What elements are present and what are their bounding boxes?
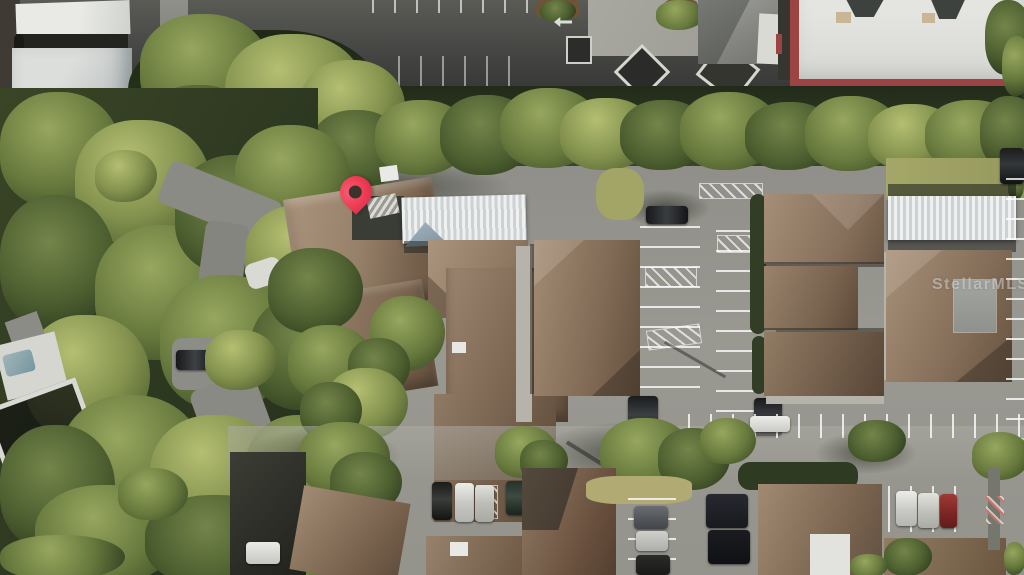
tree xyxy=(1004,542,1024,575)
car xyxy=(636,531,668,551)
car xyxy=(750,416,790,432)
fence-post xyxy=(486,56,488,88)
dumpster-enclosure xyxy=(566,36,592,64)
hvac-unit xyxy=(836,12,851,23)
parking-stripes xyxy=(1006,178,1024,440)
car xyxy=(634,506,668,529)
car xyxy=(646,206,688,224)
car xyxy=(706,494,748,528)
car xyxy=(455,483,474,522)
parking-stripes xyxy=(640,226,700,394)
fence-post xyxy=(508,56,510,88)
fence-post xyxy=(442,56,444,88)
tree xyxy=(1002,36,1024,96)
fence-post xyxy=(420,56,422,88)
hatch-marking xyxy=(718,236,754,252)
tree xyxy=(0,535,125,575)
fence-post xyxy=(464,56,466,88)
hvac-unit xyxy=(922,13,935,23)
aerial-photo: StellarMLS xyxy=(0,0,1024,575)
grass-patch xyxy=(596,168,644,220)
red-trim-left xyxy=(790,0,799,88)
seam xyxy=(530,244,534,394)
walkway xyxy=(766,396,884,404)
car xyxy=(475,485,494,522)
building-roof xyxy=(426,536,524,575)
rooftop-unit xyxy=(452,342,466,353)
hatch-marking xyxy=(646,268,696,286)
tree xyxy=(850,554,888,575)
rooftop-unit xyxy=(450,542,468,556)
hatch-marking xyxy=(986,496,1004,524)
building-roof xyxy=(764,332,884,396)
car xyxy=(940,494,957,528)
watermark: StellarMLS xyxy=(932,276,1024,294)
car xyxy=(636,555,670,575)
carport-canopy xyxy=(888,196,1016,240)
map-pin-hole xyxy=(346,183,364,201)
building-top-left-roof xyxy=(15,0,130,38)
car xyxy=(246,542,280,564)
car xyxy=(918,493,939,528)
rooftop-unit xyxy=(379,165,399,182)
car xyxy=(708,530,750,564)
car xyxy=(432,482,452,520)
building-roof xyxy=(764,266,858,330)
red-trim-sliver xyxy=(776,34,782,54)
tree xyxy=(884,538,932,575)
car xyxy=(896,491,917,526)
carport-shadow xyxy=(888,184,1016,196)
rooftop-white-section xyxy=(810,534,850,575)
